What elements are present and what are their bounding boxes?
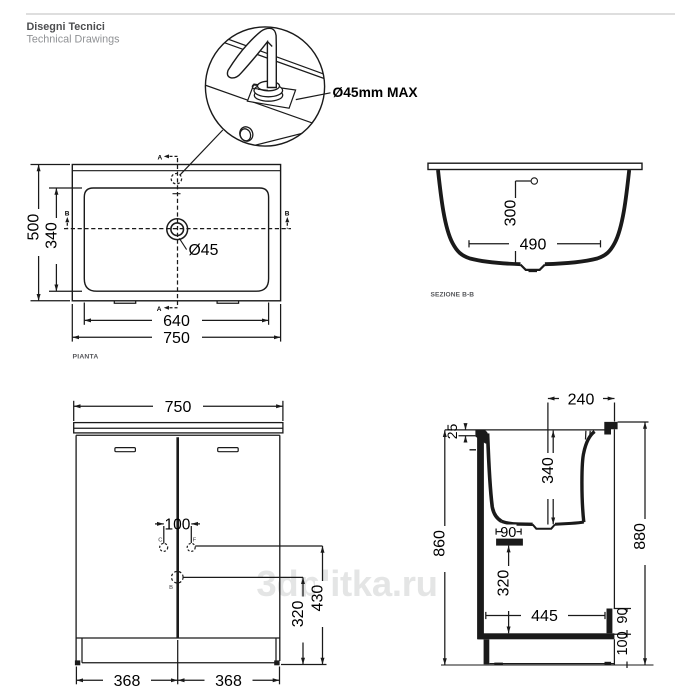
svg-text:320: 320 (496, 570, 513, 597)
svg-text:368: 368 (114, 673, 141, 690)
svg-text:750: 750 (163, 330, 190, 347)
svg-text:100: 100 (615, 631, 631, 655)
svg-text:25: 25 (444, 424, 460, 440)
svg-text:445: 445 (531, 608, 558, 625)
svg-text:Ø45mm MAX: Ø45mm MAX (333, 85, 419, 100)
svg-text:F: F (193, 537, 197, 543)
svg-text:880: 880 (632, 523, 649, 550)
svg-text:640: 640 (163, 313, 190, 330)
svg-text:B: B (285, 211, 290, 218)
svg-text:PIANTA: PIANTA (73, 353, 99, 360)
svg-text:B: B (169, 585, 173, 591)
svg-text:3dplitka.ru: 3dplitka.ru (256, 563, 437, 604)
svg-text:Disegni Tecnici: Disegni Tecnici (27, 21, 105, 33)
svg-text:368: 368 (215, 673, 242, 690)
svg-text:750: 750 (165, 399, 192, 416)
svg-text:320: 320 (290, 600, 307, 627)
svg-text:300: 300 (503, 200, 520, 227)
svg-text:430: 430 (309, 585, 326, 612)
svg-text:500: 500 (26, 214, 43, 241)
svg-text:340: 340 (43, 222, 60, 249)
svg-text:C: C (158, 537, 162, 543)
svg-text:SEZIONE B-B: SEZIONE B-B (431, 292, 475, 299)
svg-text:Ø45: Ø45 (189, 242, 219, 259)
svg-text:860: 860 (432, 530, 449, 557)
svg-text:240: 240 (568, 391, 595, 408)
svg-text:B: B (65, 211, 70, 218)
svg-text:Technical Drawings: Technical Drawings (27, 34, 121, 46)
svg-text:340: 340 (540, 457, 557, 484)
svg-text:90: 90 (615, 607, 631, 623)
svg-text:A: A (157, 306, 162, 313)
svg-text:A: A (158, 155, 163, 162)
svg-text:490: 490 (520, 236, 547, 253)
svg-text:100: 100 (164, 517, 190, 534)
